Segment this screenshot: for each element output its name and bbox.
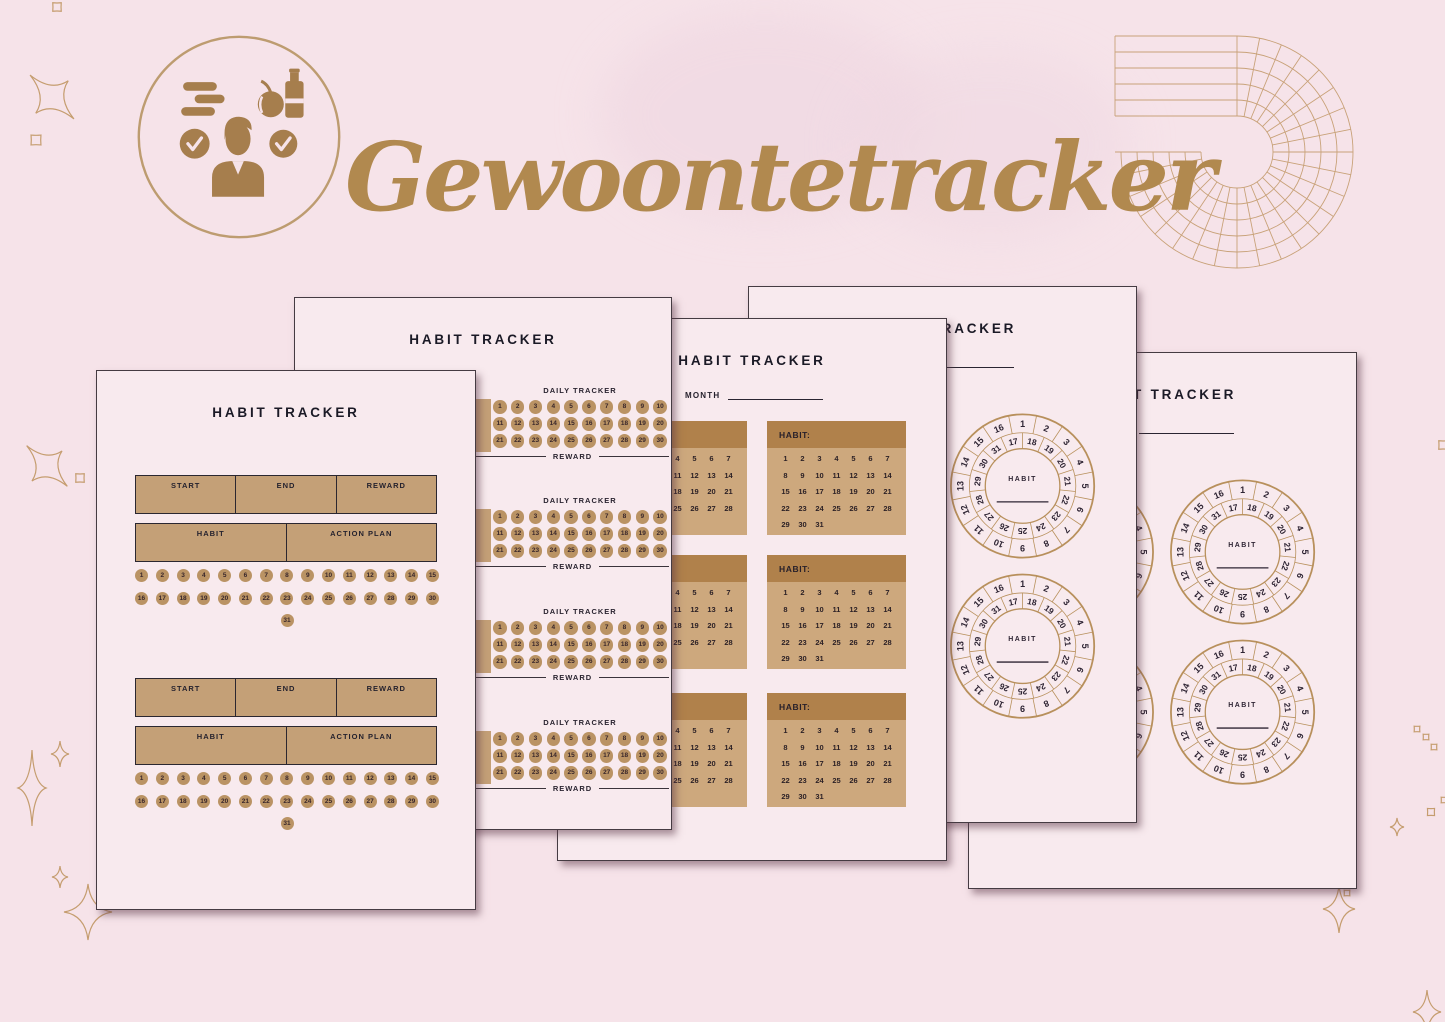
day-number: 5 [845, 723, 862, 740]
day-row: 123456789101112131415 [135, 569, 439, 582]
day-circle: 14 [547, 527, 561, 541]
wheel-habit-label: HABIT [1008, 636, 1037, 643]
wheel-day-number: 3 [1281, 503, 1292, 514]
wheel-day-number: 29 [972, 476, 983, 487]
day-circle: 9 [636, 510, 650, 524]
day-circle: 20 [653, 638, 667, 652]
day-number: 7 [720, 723, 737, 740]
day-number: 26 [686, 501, 703, 518]
day-circle: 6 [239, 772, 252, 785]
day-number: 3 [811, 451, 828, 468]
day-circle: 25 [322, 592, 335, 605]
wheel-day-number: 29 [972, 636, 983, 647]
day-circle: 19 [636, 749, 650, 763]
day-circle: 1 [493, 510, 507, 524]
wheel-day-number: 9 [1020, 703, 1025, 713]
habit-wheel: 1234567891011121314151617181920212223242… [951, 414, 1094, 557]
wheel-day-number: 2 [1042, 423, 1050, 434]
day-number: 20 [703, 756, 720, 773]
day-circle: 24 [547, 434, 561, 448]
day-number: 16 [794, 484, 811, 501]
sparkle-icon [1428, 741, 1439, 752]
reward-line-left [476, 566, 546, 567]
day-number: 20 [862, 756, 879, 773]
wheel-day-number: 18 [1246, 662, 1258, 674]
wheel-day-number: 18 [1026, 436, 1038, 448]
wheel-day-number: 6 [1074, 666, 1085, 674]
wheel-day-number: 4 [1074, 458, 1085, 466]
wheel-day-number: 26 [1218, 587, 1231, 600]
day-circle: 16 [582, 417, 596, 431]
wheel-day-number: 17 [1228, 502, 1240, 514]
day-circle: 7 [260, 569, 273, 582]
day-number: 12 [845, 468, 862, 485]
day-circle: 2 [511, 732, 525, 746]
day-circle: 5 [564, 400, 578, 414]
wheel-day-number: 3 [1281, 663, 1292, 674]
wheel-day-number: 30 [977, 457, 991, 470]
wheel-day-number: 27 [982, 509, 996, 523]
wheel-day-number: 20 [1055, 457, 1069, 470]
day-number: 28 [720, 635, 737, 652]
wheel-day-number: 19 [1042, 443, 1056, 457]
sparkle-icon [12, 431, 83, 502]
day-circle: 27 [600, 766, 614, 780]
daily-days-grid: 1234567891011121314151617181920212223242… [491, 510, 669, 557]
sparkle-icon [1411, 723, 1422, 734]
day-row: 123456789101112131415 [135, 772, 439, 785]
day-number: 10 [811, 740, 828, 757]
wheel-day-number: 4 [1294, 524, 1305, 532]
wheel-day-number: 5 [1080, 483, 1090, 488]
day-circle: 1 [135, 569, 148, 582]
habit-card-days: 1234567891011121314151617181920212223242… [767, 582, 906, 669]
day-circle: 14 [405, 569, 418, 582]
wheel-day-number: 9 [1240, 769, 1245, 779]
wheel-day-number: 7 [1061, 525, 1072, 536]
sparkle-icon [1435, 437, 1445, 454]
day-number: 3 [811, 585, 828, 602]
day-circle: 29 [405, 795, 418, 808]
reward-row: REWARD [476, 560, 669, 572]
person-head [226, 123, 251, 156]
mockup-canvas: Gewoontetracker HABIT TRACKER STARTENDRE… [0, 0, 1445, 1022]
wheel-day-number: 16 [1212, 648, 1225, 661]
day-circle: 23 [280, 592, 293, 605]
day-number: 23 [794, 501, 811, 518]
sparkle-icon [26, 130, 46, 150]
day-number: 29 [777, 517, 794, 534]
sparkle-icon [1341, 887, 1352, 898]
bottle-neck [290, 72, 299, 82]
day-circle: 29 [636, 434, 650, 448]
reward-cell: REWARD [337, 476, 436, 513]
day-circle: 28 [618, 544, 632, 558]
day-number: 26 [845, 773, 862, 790]
day-circle: 21 [239, 592, 252, 605]
sparkle-icon [14, 59, 90, 135]
wheel-day-number: 19 [1262, 509, 1276, 523]
day-number: 9 [794, 740, 811, 757]
day-circle: 31 [281, 817, 294, 830]
list-bar-icon [181, 107, 215, 116]
habit-card-days: 1234567891011121314151617181920212223242… [767, 448, 906, 535]
start-end-reward-table: STARTENDREWARD [135, 475, 437, 514]
wheel-day-number: 7 [1281, 751, 1292, 762]
action_plan-cell: ACTION PLAN [287, 727, 437, 764]
day-number: 9 [794, 602, 811, 619]
day-number: 23 [794, 773, 811, 790]
wheel-day-number: 22 [1059, 654, 1072, 666]
habit-card-label: HABIT: [779, 430, 810, 440]
day-circle: 30 [426, 795, 439, 808]
wheel-day-number: 11 [1192, 589, 1206, 603]
day-number: 26 [845, 501, 862, 518]
reward-line-right [599, 456, 669, 457]
wheel-day-number: 25 [1018, 686, 1028, 696]
day-circle: 10 [653, 510, 667, 524]
wheel-day-number: 31 [1209, 669, 1223, 683]
day-circle: 10 [653, 732, 667, 746]
day-circle: 4 [547, 400, 561, 414]
day-circle: 27 [600, 544, 614, 558]
day-number: 2 [794, 585, 811, 602]
wheel-day-number: 1 [1020, 419, 1025, 429]
day-circle: 29 [636, 655, 650, 669]
start-end-reward-table: STARTENDREWARD [135, 678, 437, 717]
wheel-day-number: 3 [1061, 597, 1072, 608]
day-number: 4 [828, 451, 845, 468]
wheel-day-number: 30 [1197, 683, 1211, 696]
day-circle: 10 [322, 772, 335, 785]
wheel-day-number: 18 [1246, 502, 1258, 514]
wheel-day-number: 22 [1059, 494, 1072, 506]
day-circle: 26 [343, 795, 356, 808]
day-number: 19 [845, 756, 862, 773]
reward-label: REWARD [553, 784, 592, 793]
day-circle: 5 [564, 621, 578, 635]
habit-card-label: HABIT: [779, 564, 810, 574]
wheel-day-number: 5 [1080, 644, 1090, 649]
day-circle: 13 [529, 638, 543, 652]
action_plan-label: ACTION PLAN [287, 524, 437, 538]
day-circle: 13 [529, 749, 543, 763]
habit-card-label: HABIT: [779, 702, 810, 712]
day-circle: 6 [582, 621, 596, 635]
brand-logo [133, 31, 345, 243]
day-circle: 19 [636, 417, 650, 431]
day-circle: 30 [426, 592, 439, 605]
wheel-day-number: 4 [1294, 684, 1305, 692]
day-circle: 18 [618, 527, 632, 541]
day-circle: 17 [156, 795, 169, 808]
day-circle: 7 [260, 772, 273, 785]
wheel-day-number: 22 [1279, 720, 1292, 732]
day-circle: 3 [177, 772, 190, 785]
day-number: 17 [811, 484, 828, 501]
sparkle-icon [49, 0, 66, 15]
list-bar-icon [183, 82, 217, 91]
day-number: 26 [845, 635, 862, 652]
day-number: 3 [811, 723, 828, 740]
wheel-day-number: 25 [1018, 526, 1028, 536]
day-circle: 19 [197, 592, 210, 605]
wheel-day-number: 31 [1209, 508, 1223, 522]
daily-days-grid: 1234567891011121314151617181920212223242… [491, 400, 669, 447]
day-circle: 10 [653, 621, 667, 635]
wheel-day-number: 25 [1238, 752, 1248, 762]
day-circle: 3 [529, 621, 543, 635]
wheel-day-number: 15 [972, 435, 986, 449]
day-number: 28 [879, 501, 896, 518]
daily-tracker-label: DAILY TRACKER [491, 718, 669, 728]
wheel-day-number: 20 [1275, 683, 1289, 696]
wheel-day-number: 31 [989, 442, 1003, 456]
day-circle: 25 [564, 766, 578, 780]
day-circle: 27 [600, 655, 614, 669]
wheel-day-number: 1 [1020, 579, 1025, 589]
day-number: 14 [879, 602, 896, 619]
page-habit-tracker-start-end-reward: HABIT TRACKER STARTENDREWARDHABITACTION … [96, 370, 476, 910]
day-circle: 26 [343, 592, 356, 605]
day-circle: 30 [653, 434, 667, 448]
day-number: 12 [686, 468, 703, 485]
day-circle: 17 [156, 592, 169, 605]
day-circle: 12 [511, 527, 525, 541]
day-number: 14 [720, 602, 737, 619]
day-circle: 29 [405, 592, 418, 605]
day-circle: 18 [177, 795, 190, 808]
wheel-day-number: 13 [1175, 707, 1185, 717]
day-number: 21 [879, 756, 896, 773]
day-circle: 8 [280, 772, 293, 785]
day-number: 29 [777, 651, 794, 668]
day-circle: 18 [618, 638, 632, 652]
wheel-day-number: 23 [1049, 670, 1063, 684]
day-number: 20 [862, 618, 879, 635]
wheel-day-number: 1 [1240, 645, 1245, 655]
day-circle: 30 [653, 655, 667, 669]
day-number: 31 [811, 789, 828, 806]
wheel-day-number: 21 [1062, 636, 1073, 647]
day-number: 14 [720, 740, 737, 757]
wheel-day-number: 6 [1294, 732, 1305, 740]
day-circle: 16 [135, 592, 148, 605]
day-circle: 13 [384, 772, 397, 785]
habit-card-header: HABIT: [767, 693, 906, 720]
day-number: 26 [686, 773, 703, 790]
day-number: 20 [703, 618, 720, 635]
habit-person-icon [180, 69, 304, 197]
wheel-day-number: 5 [1300, 549, 1310, 554]
day-number: 25 [828, 635, 845, 652]
day-number: 7 [879, 723, 896, 740]
day-circle: 18 [618, 749, 632, 763]
day-number: 28 [720, 773, 737, 790]
day-circle: 29 [636, 544, 650, 558]
wheel-day-number: 14 [959, 456, 972, 469]
day-number: 11 [828, 468, 845, 485]
day-circle: 4 [547, 732, 561, 746]
wheel-day-number: 8 [1262, 604, 1270, 615]
day-circle: 1 [493, 400, 507, 414]
reward-label: REWARD [337, 679, 436, 693]
day-circle: 26 [582, 655, 596, 669]
wheel-day-number: 28 [973, 654, 986, 666]
day-circle: 24 [547, 544, 561, 558]
wheel-day-number: 10 [992, 537, 1005, 550]
day-circle: 21 [239, 795, 252, 808]
wheel-day-number: 24 [1034, 681, 1047, 694]
wheel-day-number: 17 [1008, 436, 1020, 448]
habit-action-plan-table: HABITACTION PLAN [135, 726, 437, 765]
sparkle-icon [1420, 731, 1431, 742]
wheel-day-number: 24 [1254, 747, 1267, 760]
reward-row: REWARD [476, 450, 669, 462]
day-circle: 21 [493, 544, 507, 558]
day-circle: 6 [582, 400, 596, 414]
habit-cell: HABIT [136, 524, 287, 561]
day-circle: 13 [384, 569, 397, 582]
reward-row: REWARD [476, 782, 669, 794]
day-number: 19 [686, 756, 703, 773]
day-number: 15 [777, 484, 794, 501]
day-number: 27 [862, 773, 879, 790]
sparkle-icon [72, 470, 89, 487]
sparkle-icon [52, 866, 68, 888]
day-circle: 15 [564, 527, 578, 541]
day-circle: 13 [529, 417, 543, 431]
day-circle: 26 [582, 434, 596, 448]
day-circle: 12 [511, 638, 525, 652]
day-number: 5 [845, 585, 862, 602]
day-circle: 22 [511, 655, 525, 669]
day-number: 19 [686, 618, 703, 635]
day-circle: 28 [618, 655, 632, 669]
wheel-day-number: 3 [1061, 437, 1072, 448]
reward-label: REWARD [553, 673, 592, 682]
wheel-day-number: 12 [1179, 569, 1192, 582]
day-circle: 10 [653, 400, 667, 414]
wheel-habit-label: HABIT [1228, 702, 1257, 709]
day-number: 6 [703, 723, 720, 740]
day-number: 27 [703, 635, 720, 652]
wheel-day-number: 13 [955, 641, 965, 651]
day-circle: 30 [653, 544, 667, 558]
wheel-day-number: 13 [1175, 547, 1185, 557]
day-number: 28 [879, 635, 896, 652]
day-number: 31 [811, 517, 828, 534]
reward-cell: REWARD [337, 679, 436, 716]
wheel-day-number: 21 [1062, 476, 1073, 487]
wheel-day-number: 27 [982, 669, 996, 683]
day-number: 4 [828, 585, 845, 602]
day-number: 19 [845, 618, 862, 635]
day-circle: 25 [322, 795, 335, 808]
day-circle: 3 [177, 569, 190, 582]
day-circle: 24 [547, 766, 561, 780]
start-label: START [136, 679, 235, 693]
day-circle: 17 [600, 638, 614, 652]
day-circle: 15 [564, 638, 578, 652]
wheel-day-number: 21 [1282, 542, 1293, 553]
wheel-day-number: 5 [1300, 710, 1310, 715]
day-circle: 3 [529, 510, 543, 524]
wheel-day-number: 30 [1197, 523, 1211, 536]
day-circle: 12 [511, 417, 525, 431]
wheel-day-number: 26 [1218, 747, 1231, 760]
day-circle: 25 [564, 434, 578, 448]
daily-tracker-label: DAILY TRACKER [491, 607, 669, 617]
wheel-day-number: 15 [972, 595, 986, 609]
reward-line-right [599, 566, 669, 567]
sparkle-icon [18, 750, 46, 826]
day-number: 18 [828, 756, 845, 773]
bottle-cap [289, 69, 300, 73]
reward-line-left [476, 677, 546, 678]
day-circle: 21 [493, 434, 507, 448]
wheel-day-number: 2 [1262, 649, 1270, 660]
day-circle: 2 [156, 569, 169, 582]
day-number: 10 [811, 602, 828, 619]
wheel-day-number: 8 [1042, 538, 1050, 549]
habit-month-card: HABIT:1234567891011121314151617181920212… [767, 555, 906, 669]
day-number: 13 [862, 740, 879, 757]
day-circle: 2 [511, 621, 525, 635]
sparkle-icon [1438, 794, 1445, 805]
day-circle: 15 [564, 417, 578, 431]
day-circle: 21 [493, 655, 507, 669]
wheel-day-number: 10 [1212, 603, 1225, 616]
day-number: 21 [879, 618, 896, 635]
habit-wheel: 1234567891011121314151617181920212223242… [1171, 641, 1314, 784]
wheel-day-number: 11 [972, 523, 986, 537]
day-circle: 5 [564, 510, 578, 524]
day-number: 13 [862, 468, 879, 485]
day-circle: 12 [511, 749, 525, 763]
day-number: 9 [794, 468, 811, 485]
day-circle: 9 [636, 732, 650, 746]
habit-wheel: 1234567891011121314151617181920212223242… [1171, 480, 1314, 623]
day-number: 5 [686, 451, 703, 468]
reward-line-right [599, 788, 669, 789]
wheel-day-number: 4 [1074, 618, 1085, 626]
day-circle: 22 [511, 434, 525, 448]
day-number: 13 [703, 740, 720, 757]
sparkle-icon [51, 741, 69, 767]
day-number: 12 [845, 740, 862, 757]
brand-title: Gewoontetracker [345, 122, 1105, 233]
day-number: 22 [777, 501, 794, 518]
day-circle: 19 [636, 527, 650, 541]
day-number: 30 [794, 517, 811, 534]
list-bar-icon [195, 95, 225, 104]
wheel-day-number: 2 [1042, 583, 1050, 594]
wheel-day-number: 17 [1228, 662, 1240, 674]
wheel-day-number: 8 [1262, 764, 1270, 775]
habit-card-header: HABIT: [767, 555, 906, 582]
wheel-day-number: 24 [1034, 521, 1047, 534]
day-circle: 11 [343, 772, 356, 785]
wheel-day-number: 7 [1281, 591, 1292, 602]
wheel-day-number: 23 [1049, 509, 1063, 523]
day-number: 23 [794, 635, 811, 652]
day-circle: 16 [135, 795, 148, 808]
wheel-day-number: 26 [998, 681, 1011, 694]
day-circle: 16 [582, 638, 596, 652]
wheel-day-number: 28 [973, 494, 986, 506]
day-number: 7 [879, 585, 896, 602]
